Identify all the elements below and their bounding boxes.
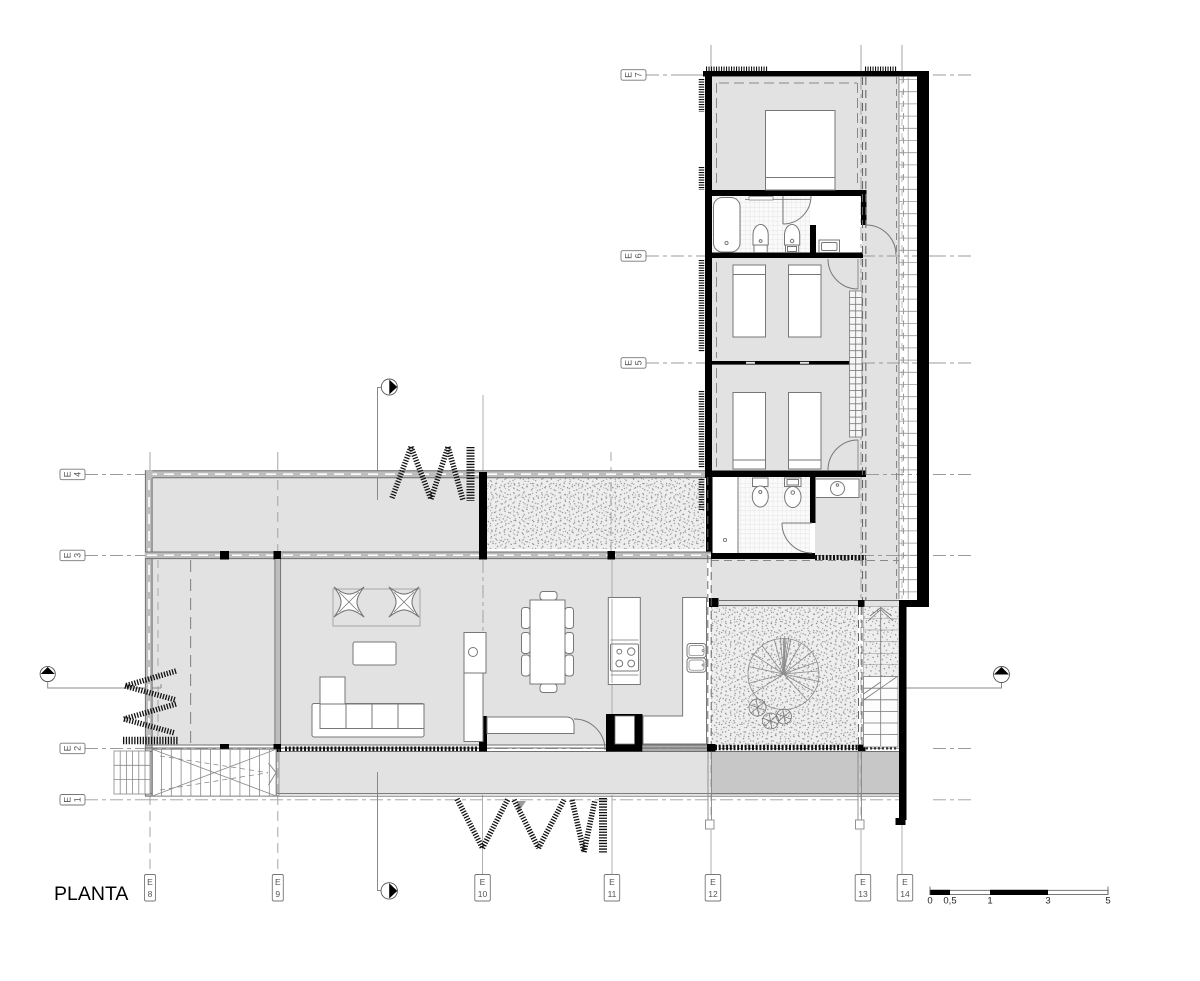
svg-text:0,5: 0,5 — [943, 896, 956, 907]
svg-text:14: 14 — [900, 889, 910, 899]
svg-text:E: E — [623, 253, 633, 259]
svg-text:7: 7 — [633, 72, 643, 77]
svg-text:1: 1 — [987, 896, 992, 907]
svg-text:10: 10 — [478, 889, 488, 899]
svg-text:4: 4 — [72, 472, 82, 477]
svg-text:8: 8 — [148, 889, 153, 899]
svg-text:2: 2 — [72, 746, 82, 751]
svg-text:11: 11 — [608, 889, 617, 899]
svg-text:6: 6 — [633, 253, 643, 258]
svg-text:5: 5 — [633, 360, 643, 365]
svg-text:E: E — [623, 72, 633, 78]
svg-text:E: E — [62, 797, 72, 803]
svg-text:9: 9 — [275, 889, 280, 899]
svg-text:12: 12 — [708, 889, 718, 899]
svg-text:3: 3 — [72, 553, 82, 558]
svg-text:E: E — [623, 360, 633, 366]
svg-text:5: 5 — [1105, 896, 1110, 907]
svg-text:1: 1 — [72, 797, 82, 802]
svg-text:3: 3 — [1045, 896, 1050, 907]
svg-text:PLANTA: PLANTA — [54, 883, 128, 905]
svg-text:E: E — [147, 877, 153, 887]
svg-text:E: E — [275, 877, 281, 887]
svg-text:E: E — [480, 877, 486, 887]
svg-text:E: E — [609, 877, 615, 887]
svg-text:13: 13 — [858, 889, 868, 899]
svg-text:0: 0 — [927, 896, 932, 907]
svg-text:E: E — [62, 745, 72, 751]
svg-text:E: E — [710, 877, 716, 887]
svg-text:E: E — [860, 877, 866, 887]
svg-text:E: E — [62, 471, 72, 477]
svg-text:E: E — [62, 552, 72, 558]
svg-text:E: E — [902, 877, 908, 887]
